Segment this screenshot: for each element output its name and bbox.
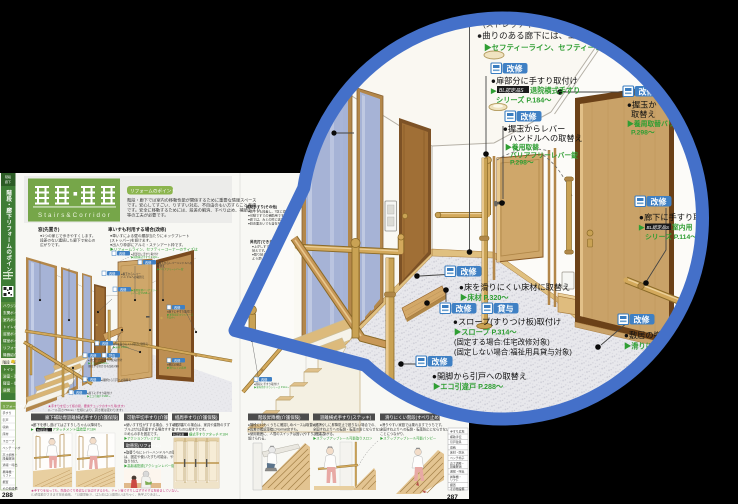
svg-text:収納: 収納 bbox=[3, 424, 9, 429]
svg-text:▶滑りにくい床材: ▶滑りにくい床材 bbox=[167, 366, 187, 370]
svg-text:●滑りやすい家庭では乗れますでうちです。: ●滑りやすい家庭では乗れますでうちです。 bbox=[380, 422, 444, 427]
svg-text:●廊下を移し逃げてはさすりしちゃん以降待ち。: ●廊下を移し逃げてはさすりしちゃん以降待ち。 bbox=[31, 422, 104, 427]
svg-text:据置: 据置 bbox=[3, 479, 9, 484]
svg-text:改修: 改修 bbox=[521, 112, 538, 122]
svg-text:可動平切手すり(介護保険): 可動平切手すり(介護保険) bbox=[127, 414, 179, 421]
svg-text:滑りにくい階段(すべり止め): 滑りにくい階段(すべり止め) bbox=[385, 414, 441, 421]
svg-text:改修: 改修 bbox=[109, 271, 116, 276]
svg-text:●開脚から引戸への取替え: ●開脚から引戸への取替え bbox=[432, 371, 527, 381]
svg-text:ベンチ椅子: ベンチ椅子 bbox=[450, 455, 465, 460]
svg-text:ですもの以部すりです。: ですもの以部すりです。 bbox=[172, 427, 208, 432]
svg-text:ことにつながり、: ことにつながり、 bbox=[380, 431, 406, 436]
svg-text:ハンドルへの取替え: ハンドルへの取替え bbox=[121, 275, 145, 279]
svg-text:ことに繋がる。: ことに繋がる。 bbox=[313, 431, 336, 436]
svg-text:段差のない連続した廊下で安心の: 段差のない連続した廊下で安心の bbox=[40, 238, 96, 243]
svg-text:その他設備: その他設備 bbox=[3, 486, 18, 491]
svg-text:BL認定品S: BL認定品S bbox=[647, 225, 670, 230]
svg-text:室内用: 室内用 bbox=[672, 223, 693, 232]
svg-text:(固定する場合:住宅改修対象): (固定する場合:住宅改修対象) bbox=[454, 338, 550, 347]
svg-text:手すり広場: 手すり広場 bbox=[450, 429, 465, 434]
svg-text:●握玉か: ●握玉か bbox=[627, 100, 657, 110]
svg-text:改修: 改修 bbox=[119, 251, 126, 256]
svg-text:段差解消: 段差解消 bbox=[3, 456, 15, 461]
svg-text:改修: 改修 bbox=[456, 304, 473, 314]
svg-text:楢周手すり(介護保険): 楢周手すり(介護保険) bbox=[175, 414, 218, 421]
svg-text:リフォームのポイント: リフォームのポイント bbox=[130, 187, 176, 193]
svg-text:●開脚から引戸への取替え: ●開脚から引戸への取替え bbox=[101, 378, 132, 382]
svg-text:●1つの家じで歩きやすくします。: ●1つの家じで歩きやすくします。 bbox=[40, 233, 96, 238]
svg-text:●扉部分に手すり取付け: ●扉部分に手すり取付け bbox=[491, 76, 578, 86]
svg-text:手すり: 手すり bbox=[3, 410, 12, 415]
svg-text:床材: 床材 bbox=[3, 431, 9, 436]
svg-text:居間: 居間 bbox=[3, 388, 11, 393]
svg-text:少めんの手を固定です。: 少めんの手を固定です。 bbox=[124, 431, 160, 436]
svg-text:▶: ▶ bbox=[638, 225, 645, 232]
svg-text:Stairs&Corridor: Stairs&Corridor bbox=[38, 212, 112, 219]
svg-text:▶アクションプレミアは: ▶アクションプレミアは bbox=[124, 436, 161, 441]
svg-text:引戸建具: 引戸建具 bbox=[450, 439, 462, 444]
svg-text:貸与: 貸与 bbox=[109, 353, 115, 358]
svg-text:(固定しない場合:福祉用具貸与対象): (固定しない場合:福祉用具貸与対象) bbox=[454, 348, 572, 357]
svg-text:改修: 改修 bbox=[76, 390, 83, 395]
svg-text:取り付け。: 取り付け。 bbox=[124, 459, 140, 464]
svg-text:設けられる。: 設けられる。 bbox=[248, 436, 268, 441]
svg-text:改修: 改修 bbox=[90, 377, 97, 382]
svg-text:▶エコ引違戸 P.288〜: ▶エコ引違戸 P.288〜 bbox=[433, 382, 504, 391]
svg-text:バリアフリーレバー錠: バリアフリーレバー錠 bbox=[510, 151, 578, 160]
svg-text:改修: 改修 bbox=[102, 341, 109, 346]
svg-text:▶退院横式手すり P.184〜: ▶退院横式手すり P.184〜 bbox=[131, 255, 160, 259]
svg-text:広がりです。: 広がりです。 bbox=[40, 242, 62, 247]
svg-text:▶床材 P.320〜: ▶床材 P.320〜 bbox=[460, 293, 509, 302]
svg-text:改修: 改修 bbox=[174, 305, 181, 310]
svg-text:●スロープ(すりつけ板)取付け: ●スロープ(すりつけ板)取付け bbox=[453, 317, 561, 327]
svg-text:改修: 改修 bbox=[461, 267, 478, 277]
svg-text:等の工夫が必要です。: 等の工夫が必要です。 bbox=[127, 212, 168, 219]
svg-text:(1)通常能がさきます場合連絡、「1)開閉等(※、はため)は: (1)通常能がさきます場合連絡、「1)開閉等(※、はため)は(1)開閉(い)まち… bbox=[31, 492, 162, 497]
svg-text:改修: 改修 bbox=[507, 64, 524, 74]
svg-text:●段差の確認薄暗にNormal戻すも。: ●段差の確認薄暗にNormal戻すも。 bbox=[248, 427, 300, 432]
svg-text:改修: 改修 bbox=[174, 358, 181, 363]
svg-text:改修: 改修 bbox=[145, 260, 152, 265]
svg-text:▶室内用手すりシリーズ P.114〜: ▶室内用手すりシリーズ P.114〜 bbox=[254, 385, 290, 389]
svg-text:廊下: 廊下 bbox=[5, 179, 11, 184]
svg-text:●車いすによる壁の腰部当たりにキックプレート: ●車いすによる壁の腰部当たりにキックプレート bbox=[110, 233, 190, 238]
svg-text:(レール高さ750mm・仕様により、高さ能は変わります): (レール高さ750mm・仕様により、高さ能は変わります) bbox=[48, 407, 123, 412]
svg-text:引戸: 引戸 bbox=[3, 417, 9, 422]
svg-text:窓(先置き): 窓(先置き) bbox=[38, 226, 60, 233]
svg-text:補助手すり(その他): 補助手すり(その他) bbox=[245, 204, 278, 209]
svg-text:▶養用取替: ▶養用取替 bbox=[505, 143, 539, 152]
svg-text:スロープ: スロープ bbox=[3, 438, 15, 443]
svg-text:改修: 改修 bbox=[120, 287, 127, 292]
svg-text:(ストッパー)を設けます。: (ストッパー)を設けます。 bbox=[110, 238, 153, 243]
svg-text:改修: 改修 bbox=[261, 377, 268, 382]
svg-text:P.298〜: P.298〜 bbox=[510, 160, 534, 167]
svg-text:退院横式手すり: 退院横式手すり bbox=[530, 86, 580, 95]
svg-text:横式手すりアタッチ P.184: 横式手すりアタッチ P.184 bbox=[189, 432, 228, 437]
svg-text:改修: 改修 bbox=[90, 353, 97, 358]
svg-text:●廊下建ての場合は、家具や建物のすず: ●廊下建ての場合は、家具や建物のすず bbox=[172, 422, 231, 427]
svg-text:BL認定品: BL認定品 bbox=[173, 432, 184, 436]
svg-text:レバー錠 P.298〜: レバー錠 P.298〜 bbox=[131, 291, 150, 295]
svg-text:287: 287 bbox=[447, 494, 458, 501]
svg-text:シリーズ P.114〜: シリーズ P.114〜 bbox=[645, 232, 697, 241]
svg-text:車いすも利用する場合(改修): 車いすも利用する場合(改修) bbox=[108, 226, 167, 233]
svg-text:取替窓(リフォーム): 取替窓(リフォーム) bbox=[126, 442, 161, 448]
svg-text:は、固定や使いたすも可能は、やすし: は、固定や使いたすも可能は、やすし bbox=[124, 454, 180, 459]
svg-text:全国すねぶりへの転倒・転落防止にならせない: 全国すねぶりへの転倒・転落防止にならせない bbox=[380, 427, 450, 432]
svg-text:改修: 改修 bbox=[432, 357, 449, 367]
svg-text:▶ステップアップレール可能パンピー: ▶ステップアップレール可能パンピー bbox=[380, 436, 436, 441]
svg-text:取替え: 取替え bbox=[631, 109, 656, 119]
svg-text:リフト: リフト bbox=[450, 477, 459, 482]
svg-text:廊下補助専遊離横式手すり(介護保険): 廊下補助専遊離横式手すり(介護保険) bbox=[45, 414, 119, 421]
svg-text:▶バリアフリーレバー錠: ▶バリアフリーレバー錠 bbox=[157, 267, 184, 271]
svg-text:補助手伝: 補助手伝 bbox=[450, 434, 462, 439]
svg-text:P.298〜: P.298〜 bbox=[631, 130, 655, 137]
svg-text:階段昇降機(介護保険): 階段昇降機(介護保険) bbox=[258, 414, 301, 421]
svg-text:●床を滑りにくい床材に取替え: ●床を滑りにくい床材に取替え bbox=[459, 282, 570, 292]
svg-text:通報・呼出: 通報・呼出 bbox=[450, 469, 465, 474]
svg-text:288: 288 bbox=[2, 492, 13, 499]
svg-text:トイレ: トイレ bbox=[3, 368, 14, 372]
svg-text:床材・防水: 床材・防水 bbox=[450, 450, 465, 455]
svg-text:シリーズ P.184〜: シリーズ P.184〜 bbox=[496, 96, 552, 105]
svg-text:▶スロープ P.314〜: ▶スロープ P.314〜 bbox=[454, 328, 517, 337]
svg-text:全国すねぶりへの転倒・転落の防じならせない: 全国すねぶりへの転倒・転落の防じならせない bbox=[313, 427, 383, 432]
svg-text:階段: 階段 bbox=[5, 174, 11, 179]
svg-text:▶: ▶ bbox=[490, 88, 497, 95]
svg-text:●握玉からレバー: ●握玉からレバー bbox=[503, 124, 565, 134]
svg-text:(固定する場合:住宅改修対象): (固定する場合:住宅改修対象) bbox=[88, 364, 119, 368]
svg-text:P.114〜: P.114〜 bbox=[167, 317, 176, 320]
svg-text:遊離横式手すり(ステッキ): 遊離横式手すり(ステッキ) bbox=[320, 414, 372, 421]
svg-text:段差解消: 段差解消 bbox=[450, 463, 462, 468]
svg-text:▶養周取替バリ: ▶養周取替バリ bbox=[627, 119, 675, 128]
svg-text:●出入り枠部にアルミ・ステンアート枠です。: ●出入り枠部にアルミ・ステンアート枠です。 bbox=[110, 242, 185, 247]
svg-text:●廊下やしに昇降防止で廻りない場合での、: ●廊下やしに昇降防止で廻りない場合での、 bbox=[313, 422, 378, 427]
svg-text:▶ステップアップレール可能取りスロン: ▶ステップアップレール可能取りスロン bbox=[313, 436, 373, 441]
svg-text:改修: 改修 bbox=[634, 315, 651, 325]
svg-text:▶エコ引違戸 P.288〜: ▶エコ引違戸 P.288〜 bbox=[87, 394, 111, 398]
svg-text:ハンドルへの取替え: ハンドルへの取替え bbox=[509, 133, 583, 143]
svg-text:階段・廊下リフォームのポイント: 階段・廊下リフォームのポイント bbox=[5, 189, 12, 279]
svg-text:▶リフォームライン、セフティーコーナーのサイズは: ▶リフォームライン、セフティーコーナーのサイズは bbox=[110, 247, 198, 252]
svg-text:ブルぶせ!は荷重すする場合すする: ブルぶせ!は荷重すする場合すする bbox=[124, 427, 174, 432]
svg-text:貸与: 貸与 bbox=[497, 304, 514, 314]
svg-text:BL認定品: BL認定品 bbox=[37, 428, 48, 432]
svg-text:ベンチ・いす: ベンチ・いす bbox=[3, 445, 21, 450]
svg-text:収納: 収納 bbox=[450, 444, 456, 449]
svg-text:改修: 改修 bbox=[651, 197, 668, 207]
svg-text:その他設備: その他設備 bbox=[450, 486, 465, 491]
svg-text:BL認定品S: BL認定品S bbox=[499, 87, 524, 94]
svg-text:通報・呼出: 通報・呼出 bbox=[3, 462, 18, 467]
svg-text:リフト: リフト bbox=[3, 473, 12, 478]
